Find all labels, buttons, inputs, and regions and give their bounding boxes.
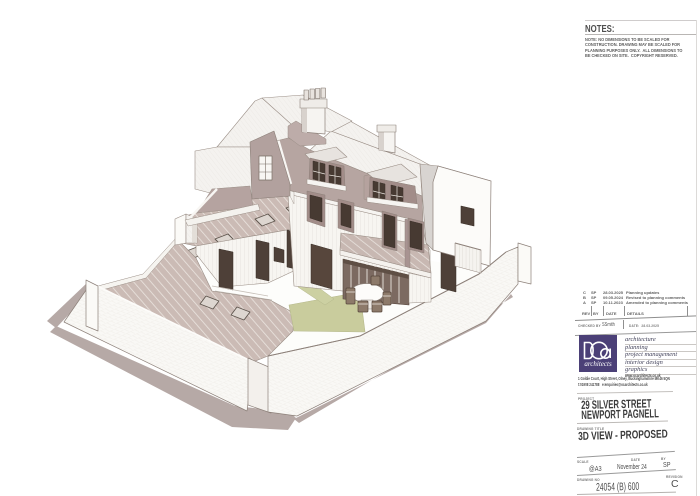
svg-text:architects: architects bbox=[584, 360, 612, 368]
